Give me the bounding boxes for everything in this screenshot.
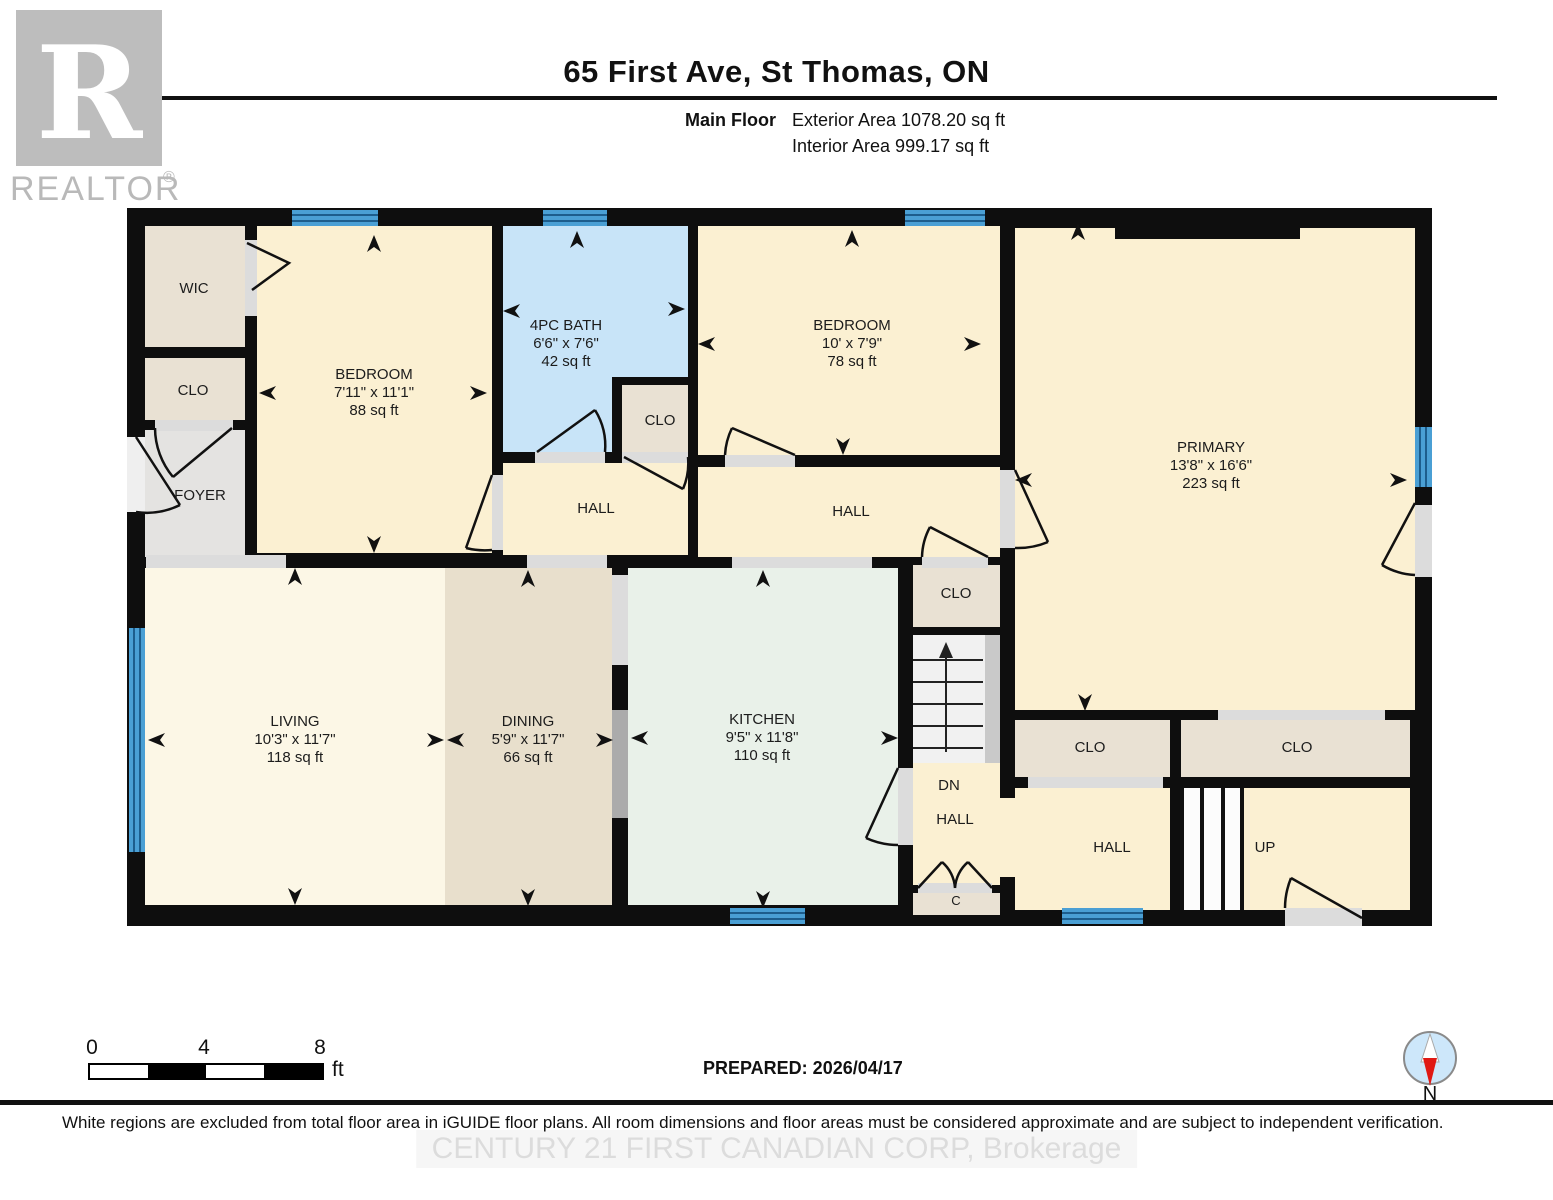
room-label-dining: DINING 5'9" x 11'7" 66 sq ft	[492, 713, 565, 767]
room-dims: 10' x 7'9"	[813, 335, 891, 353]
room-label-bedroom1: BEDROOM 7'11" x 11'1" 88 sq ft	[334, 366, 414, 420]
window	[730, 908, 805, 924]
floor-label: Main Floor	[560, 110, 776, 131]
room-label-hall-west: HALL	[577, 500, 615, 518]
room-label-clo-stairs: CLO	[941, 585, 972, 603]
room-area: 118 sq ft	[254, 749, 335, 767]
footer-divider-line	[0, 1100, 1553, 1105]
room-label-hall-east: HALL	[832, 503, 870, 521]
room-label-living: LIVING 10'3" x 11'7" 118 sq ft	[254, 713, 335, 767]
room-label-clo-rear-left: CLO	[1075, 739, 1106, 757]
room-dims: 5'9" x 11'7"	[492, 731, 565, 749]
stairs-up	[1181, 788, 1243, 910]
scale-segment	[264, 1065, 322, 1078]
window	[129, 628, 145, 852]
scale-unit-label: ft	[332, 1058, 344, 1082]
registered-mark-icon: ®	[163, 169, 175, 186]
room-name: BEDROOM	[334, 366, 414, 384]
room-label-clo-rear-right: CLO	[1282, 739, 1313, 757]
prepared-date: PREPARED: 2026/04/17	[703, 1058, 903, 1079]
scale-bar	[88, 1063, 324, 1080]
window	[1062, 908, 1143, 924]
exterior-area-value: Exterior Area 1078.20 sq ft	[792, 110, 1005, 131]
room-label-foyer: FOYER	[174, 487, 226, 505]
realtor-logo: R REALTOR ®	[10, 10, 181, 208]
window	[1415, 427, 1432, 487]
scale-segment	[148, 1065, 206, 1078]
room-label-c-closet: C	[951, 892, 960, 910]
room-dims: 6'6" x 7'6"	[530, 335, 602, 353]
room-area: 42 sq ft	[530, 353, 602, 371]
floor-plan-page: R REALTOR ®	[0, 0, 1553, 1200]
room-area: 110 sq ft	[726, 747, 799, 765]
window	[905, 210, 985, 226]
realtor-logo-text: REALTOR	[10, 170, 181, 208]
room-name: KITCHEN	[726, 711, 799, 729]
room-name: DINING	[492, 713, 565, 731]
room-dims: 9'5" x 11'8"	[726, 729, 799, 747]
room-label-up: UP	[1255, 839, 1276, 857]
header-divider-line	[55, 96, 1497, 100]
interior-area-value: Interior Area 999.17 sq ft	[792, 136, 989, 157]
room-label-clo-foyer: CLO	[178, 382, 209, 400]
compass-north-label: N	[1423, 1083, 1437, 1106]
compass-icon	[1404, 1032, 1456, 1086]
room-label-wic: WIC	[179, 280, 208, 298]
room-area: 223 sq ft	[1170, 475, 1252, 493]
room-label-hall-down: HALL	[936, 811, 974, 829]
room-label-clo-bath: CLO	[645, 412, 676, 430]
room-dims: 10'3" x 11'7"	[254, 731, 335, 749]
room-area: 66 sq ft	[492, 749, 565, 767]
room-dims: 7'11" x 11'1"	[334, 384, 414, 402]
room-name: BEDROOM	[813, 317, 891, 335]
room-name: 4PC BATH	[530, 317, 602, 335]
floor-plan-canvas: R REALTOR ®	[0, 0, 1553, 1200]
room-label-hall-rear: HALL	[1093, 839, 1131, 857]
room-label-bath: 4PC BATH 6'6" x 7'6" 42 sq ft	[530, 317, 602, 371]
pass-through-opening	[612, 710, 628, 818]
window	[543, 210, 607, 226]
scale-tick-4: 4	[198, 1036, 210, 1060]
room-label-primary: PRIMARY 13'8" x 16'6" 223 sq ft	[1170, 439, 1252, 493]
brokerage-watermark: CENTURY 21 FIRST CANADIAN CORP, Brokerag…	[416, 1130, 1138, 1168]
room-area: 78 sq ft	[813, 353, 891, 371]
scale-segment	[206, 1065, 264, 1078]
room-area: 88 sq ft	[334, 402, 414, 420]
stairs-down	[913, 635, 1000, 763]
room-label-dn: DN	[938, 777, 960, 795]
scale-segment	[90, 1065, 148, 1078]
window	[292, 210, 378, 226]
realtor-logo-monogram: R	[36, 19, 144, 169]
scale-tick-0: 0	[86, 1036, 98, 1060]
room-dims: 13'8" x 16'6"	[1170, 457, 1252, 475]
page-title: 65 First Ave, St Thomas, ON	[0, 54, 1553, 90]
room-label-kitchen: KITCHEN 9'5" x 11'8" 110 sq ft	[726, 711, 799, 765]
room-name: LIVING	[254, 713, 335, 731]
scale-tick-8: 8	[314, 1036, 326, 1060]
room-name: PRIMARY	[1170, 439, 1252, 457]
room-label-bedroom2: BEDROOM 10' x 7'9" 78 sq ft	[813, 317, 891, 371]
